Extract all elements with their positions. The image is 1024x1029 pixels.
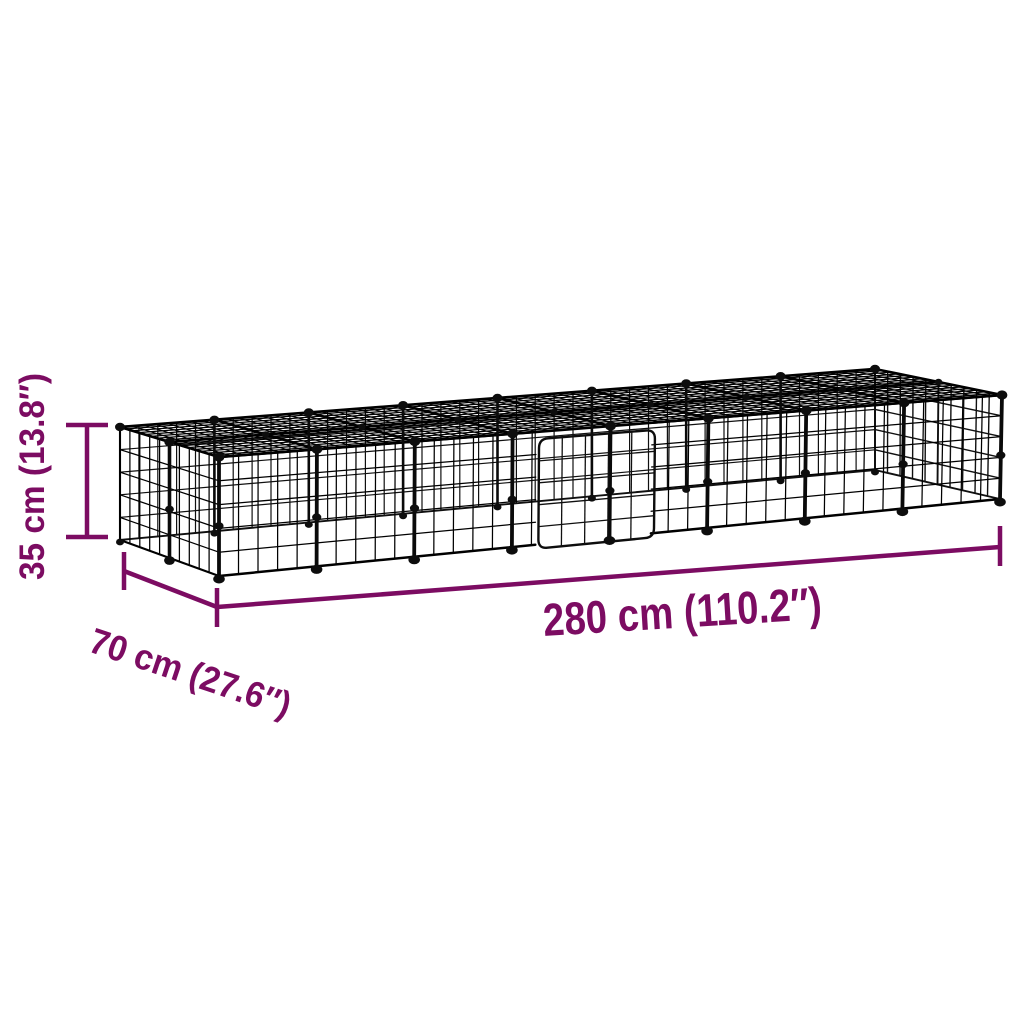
svg-text:35 cm (13.8″): 35 cm (13.8″)	[13, 373, 52, 580]
